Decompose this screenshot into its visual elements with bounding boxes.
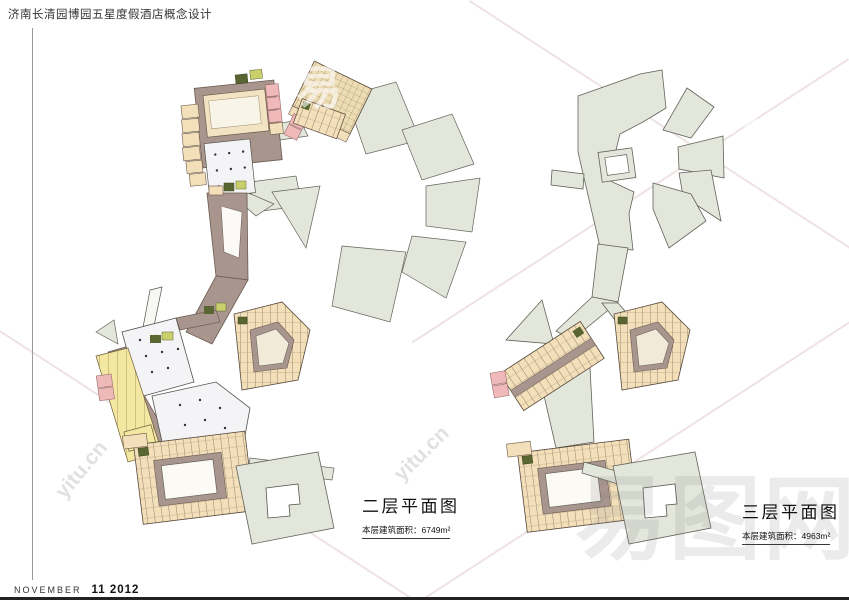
second-floor-label: 二层平面图 本层建筑面积：6749m² (362, 492, 460, 539)
guestroom-pentagon-wing (614, 302, 690, 390)
presentation-page: 易 易 易 易 易 易图网 yitu.cn yitu.cn 济南长清园博园五星度… (0, 0, 849, 600)
guestroom-pentagon-wing (234, 302, 310, 390)
detached-roof (236, 452, 334, 544)
area-value: 4963m² (802, 531, 831, 541)
second-floor-plan (96, 61, 480, 544)
footer-date: 11 2012 (92, 584, 140, 596)
page-title: 济南长清园博园五星度假酒店概念设计 (8, 6, 212, 22)
area-label: 本层建筑面积： (742, 531, 802, 541)
footer: NOVEMBER11 2012 (14, 580, 139, 598)
third-floor-area: 本层建筑面积：4963m² (742, 530, 830, 545)
skylight (598, 148, 636, 182)
detached-roof (613, 452, 711, 544)
area-label: 本层建筑面积： (362, 525, 422, 535)
third-floor-label: 三层平面图 本层建筑面积：4963m² (742, 498, 840, 545)
second-floor-title: 二层平面图 (362, 492, 460, 517)
area-value: 6749m² (422, 525, 451, 535)
left-rule (32, 28, 33, 580)
third-floor-plan (490, 70, 724, 544)
third-floor-title: 三层平面图 (742, 498, 840, 523)
second-floor-area: 本层建筑面积：6749m² (362, 524, 450, 539)
footer-month: NOVEMBER (14, 585, 82, 595)
